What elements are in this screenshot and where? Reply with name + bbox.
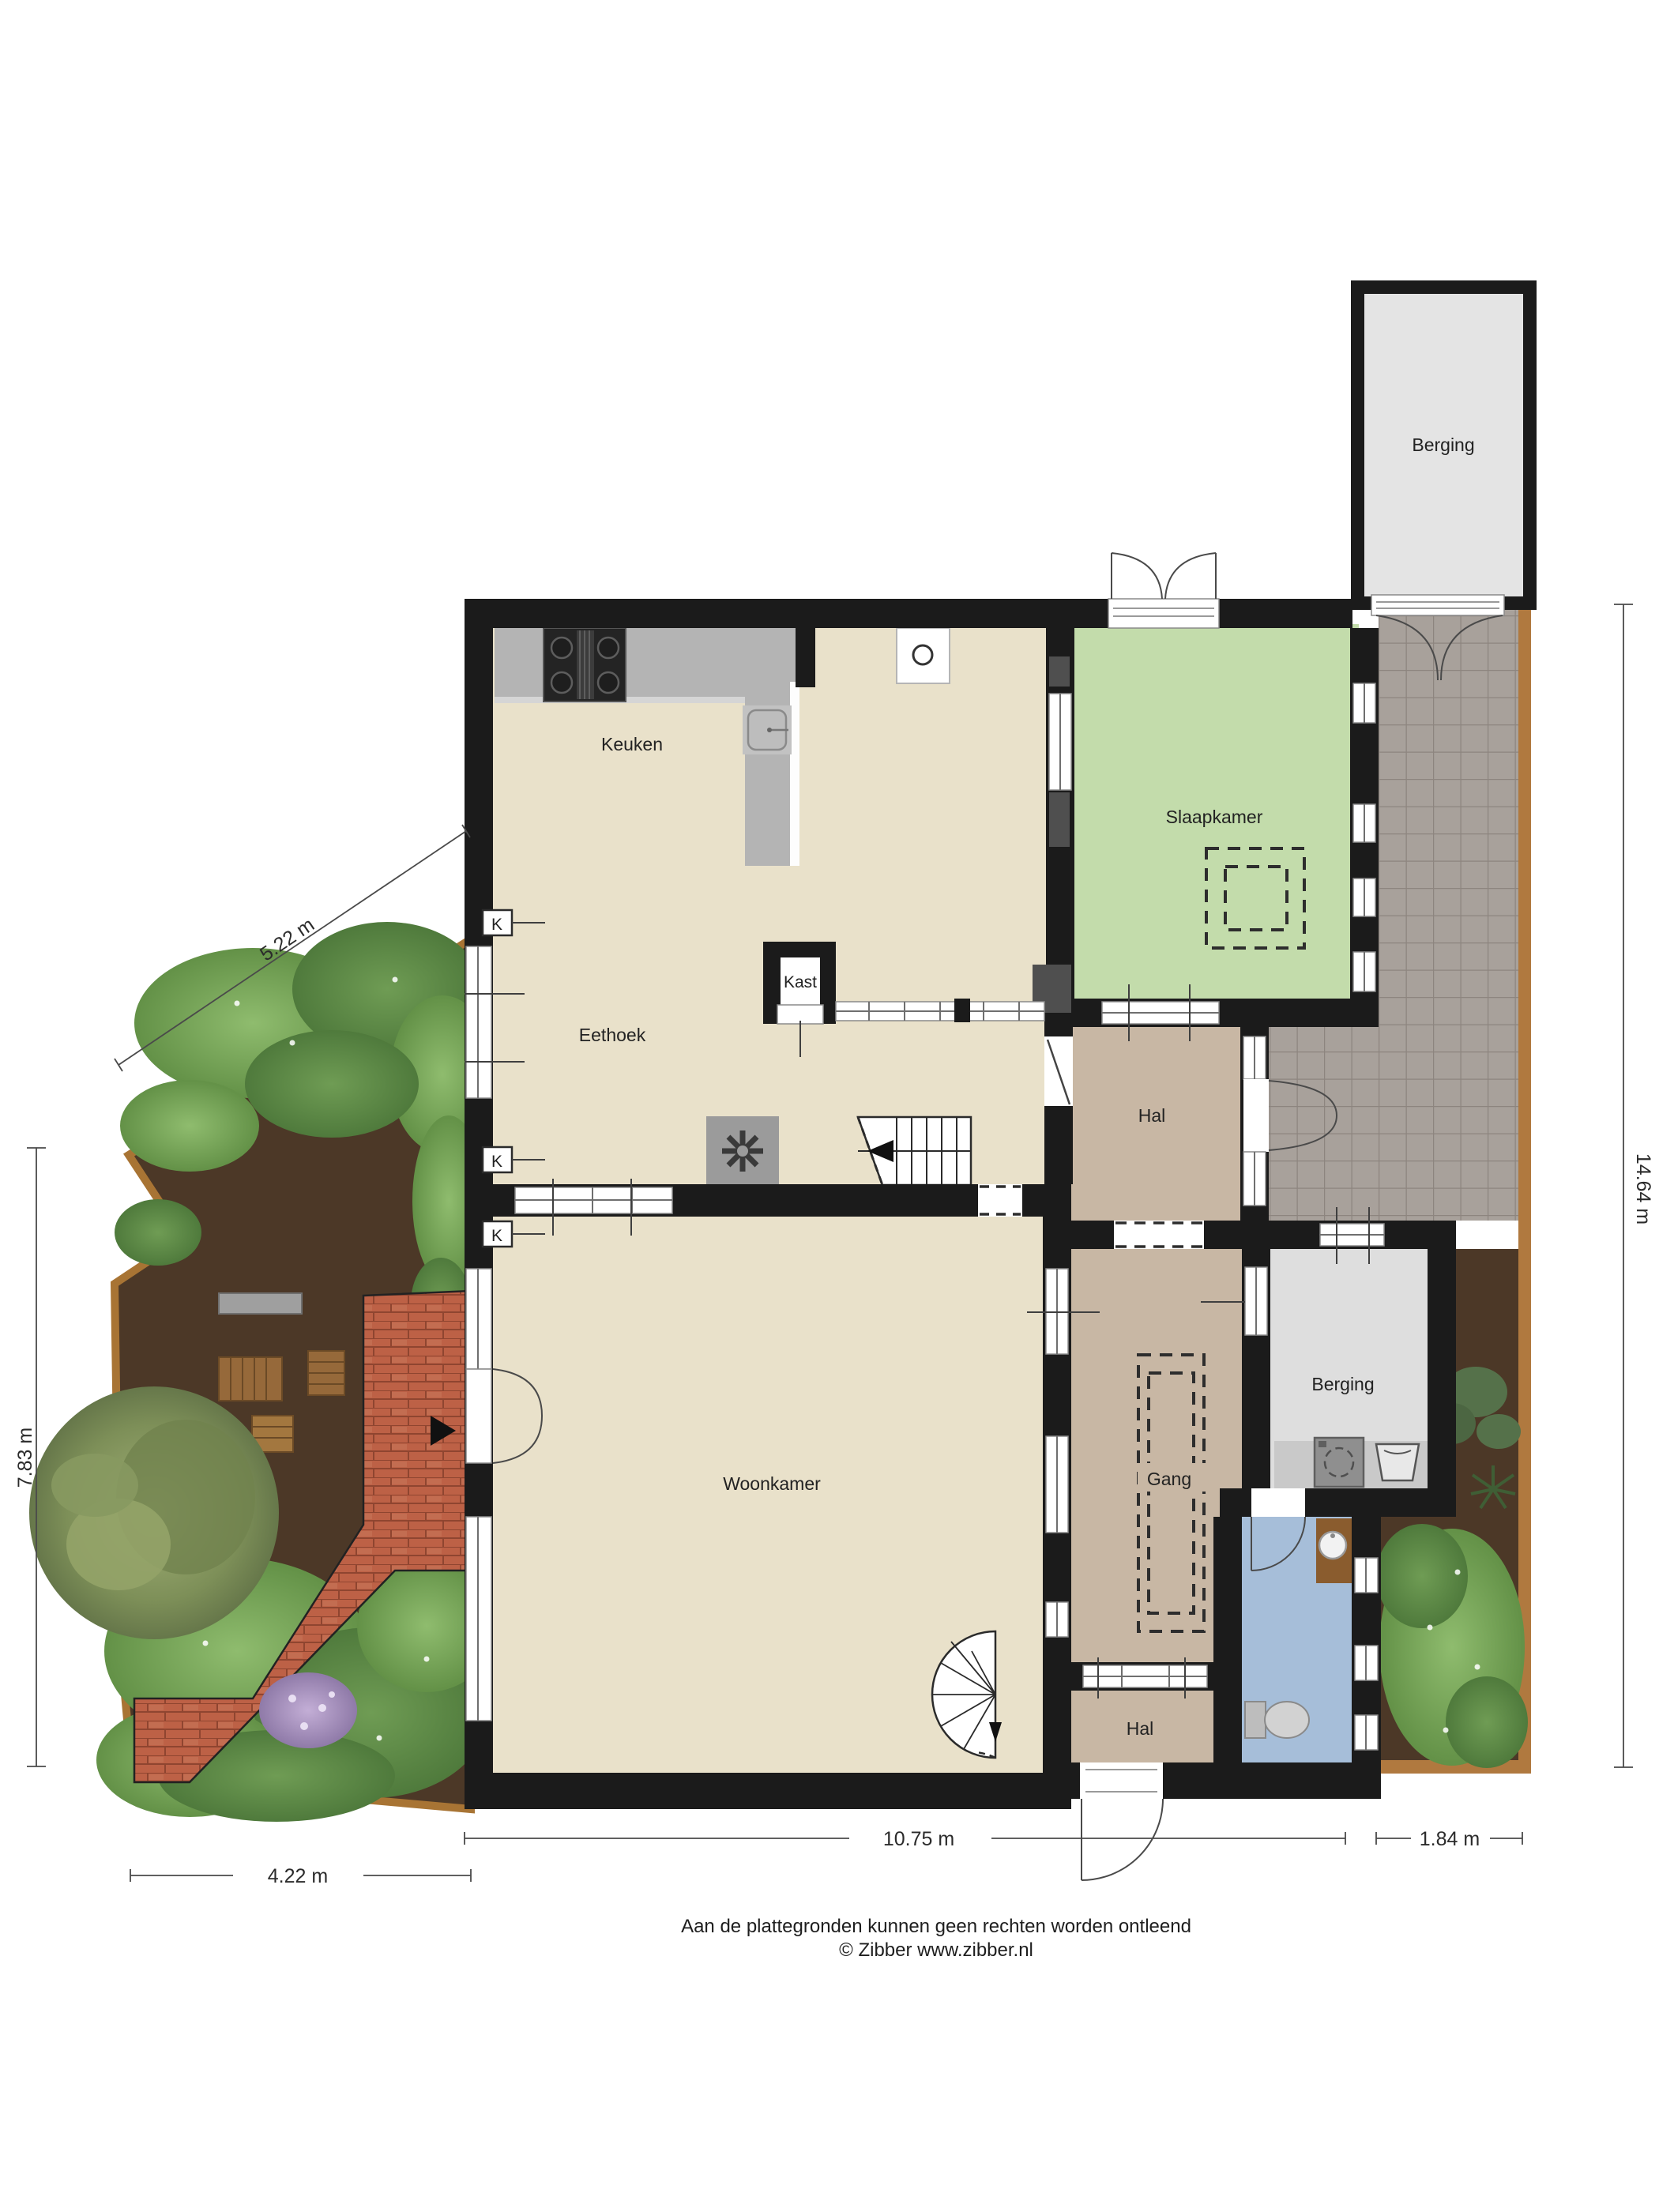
footer: Aan de plattegronden kunnen geen rechten… — [681, 1916, 1191, 1961]
room-label-woonkamer: Woonkamer — [723, 1473, 821, 1494]
laundry-rack-icon — [1376, 1444, 1419, 1480]
room-label-berging-schuur: Berging — [1412, 434, 1474, 455]
toilet-icon — [1245, 1702, 1309, 1738]
dim-bottom-right: 1.84 m — [1420, 1828, 1480, 1850]
flower-bush-icon — [259, 1672, 357, 1748]
floorplan-canvas: K K K Keuken Eethoek Kast Slaapkamer Hal… — [0, 0, 1659, 2212]
front-door-arc — [1082, 1799, 1163, 1880]
wood-border — [1518, 610, 1531, 1774]
oven-icon — [897, 628, 950, 683]
room-label-keuken: Keuken — [601, 734, 663, 754]
dim-bottom-middle: 10.75 m — [883, 1828, 954, 1850]
dim-right-vertical: 14.64 m — [1632, 1153, 1654, 1224]
tree-icon — [29, 1386, 279, 1639]
floorplan-page: K K K Keuken Eethoek Kast Slaapkamer Hal… — [0, 0, 1659, 2212]
room-label-hal-entree: Hal — [1127, 1718, 1154, 1739]
k-marker-label: K — [491, 1227, 502, 1245]
room-label-slaapkamer: Slaapkamer — [1166, 807, 1263, 827]
washbasin-icon — [1316, 1518, 1352, 1583]
garden-left — [29, 922, 496, 1822]
room-label-kast: Kast — [784, 973, 817, 991]
floor-hal — [1059, 1011, 1256, 1240]
dim-bottom-left: 4.22 m — [268, 1865, 328, 1887]
washing-machine-icon — [1315, 1438, 1364, 1487]
room-label-berging: Berging — [1311, 1374, 1374, 1394]
room-label-hal: Hal — [1138, 1105, 1166, 1126]
laundry-area — [1274, 1438, 1428, 1488]
stove-icon — [544, 628, 626, 702]
footer-copyright: © Zibber www.zibber.nl — [839, 1939, 1033, 1961]
slaapkamer-doors-arc — [1112, 553, 1216, 599]
sink-icon — [743, 705, 792, 754]
k-marker-label: K — [491, 916, 502, 934]
footer-disclaimer: Aan de plattegronden kunnen geen rechten… — [681, 1916, 1191, 1937]
k-marker-label: K — [491, 1153, 502, 1171]
fireplace-icon — [706, 1116, 779, 1186]
room-label-gang: Gang — [1147, 1469, 1191, 1489]
dim-garden-left: 7.83 m — [14, 1428, 36, 1488]
room-label-eethoek: Eethoek — [579, 1025, 646, 1045]
